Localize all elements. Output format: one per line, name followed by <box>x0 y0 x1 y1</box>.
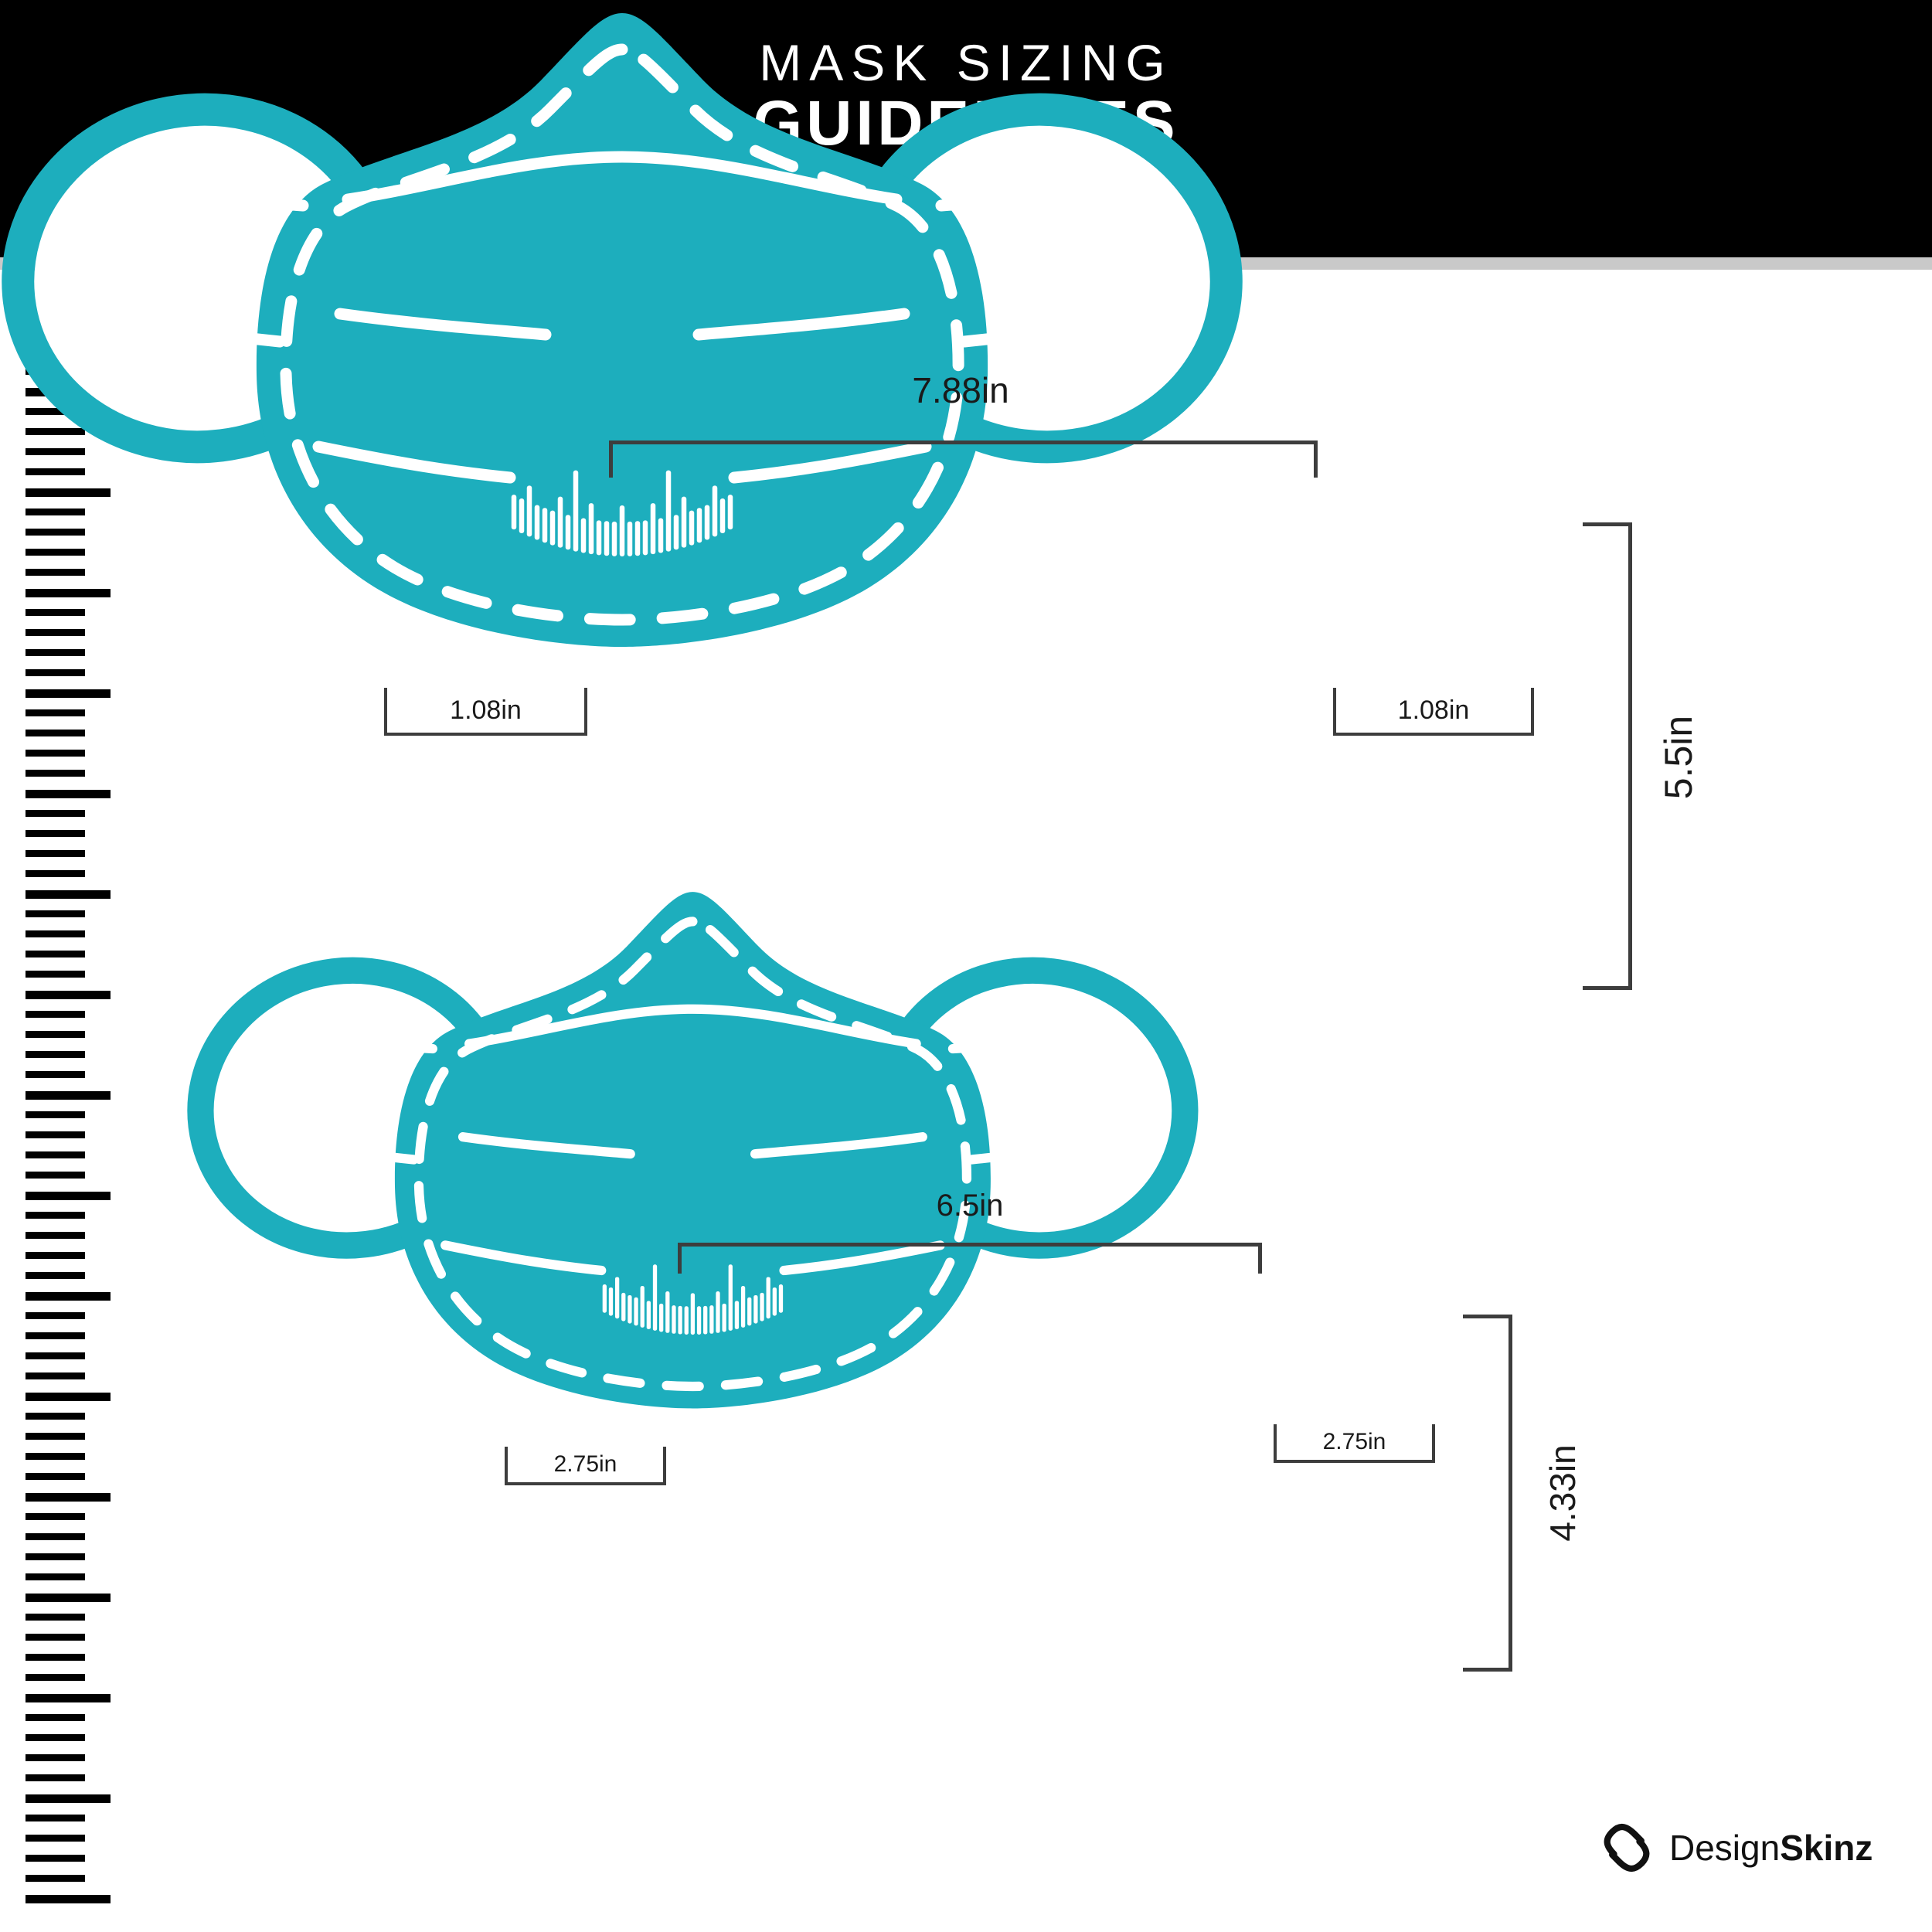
small-right-ear-dimension: 2.75in <box>1274 1424 1435 1463</box>
mask-large-name: LARGE <box>852 845 1073 911</box>
mask-small-name: SMALL <box>881 1570 1059 1624</box>
large-width-bracket <box>609 440 1318 478</box>
large-right-ear-dimension: 1.08in <box>1333 688 1534 736</box>
large-height-dimension-label: 5.5in <box>1655 680 1702 835</box>
large-left-ear-label: 1.08in <box>450 696 522 726</box>
brand-name-regular: Design <box>1669 1828 1780 1868</box>
small-width-dimension-label: 6.5in <box>815 1189 1124 1223</box>
small-height-dimension-label: 4.33in <box>1539 1416 1586 1570</box>
small-left-ear-dimension: 2.75in <box>505 1447 666 1485</box>
large-right-ear-label: 1.08in <box>1398 696 1470 726</box>
infographic-canvas: MASK SIZING GUIDELINES <box>0 0 1932 1932</box>
small-height-bracket <box>1463 1315 1512 1672</box>
brand-name-bold: Skinz <box>1780 1828 1872 1868</box>
large-left-ear-dimension: 1.08in <box>384 688 587 736</box>
mask-small-illustration: S SMALL <box>463 1247 1527 1788</box>
large-width-dimension-label: 7.88in <box>806 369 1115 411</box>
designskinz-diamond-s-icon <box>1595 1815 1658 1881</box>
small-width-bracket <box>678 1243 1262 1274</box>
small-right-ear-label: 2.75in <box>1323 1429 1386 1455</box>
page-title-line1: MASK SIZING <box>759 37 1172 88</box>
small-left-ear-label: 2.75in <box>554 1451 617 1478</box>
large-height-bracket <box>1583 522 1632 990</box>
brand-name: DesignSkinz <box>1669 1827 1872 1869</box>
brand-logo: DesignSkinz <box>1595 1815 1872 1881</box>
